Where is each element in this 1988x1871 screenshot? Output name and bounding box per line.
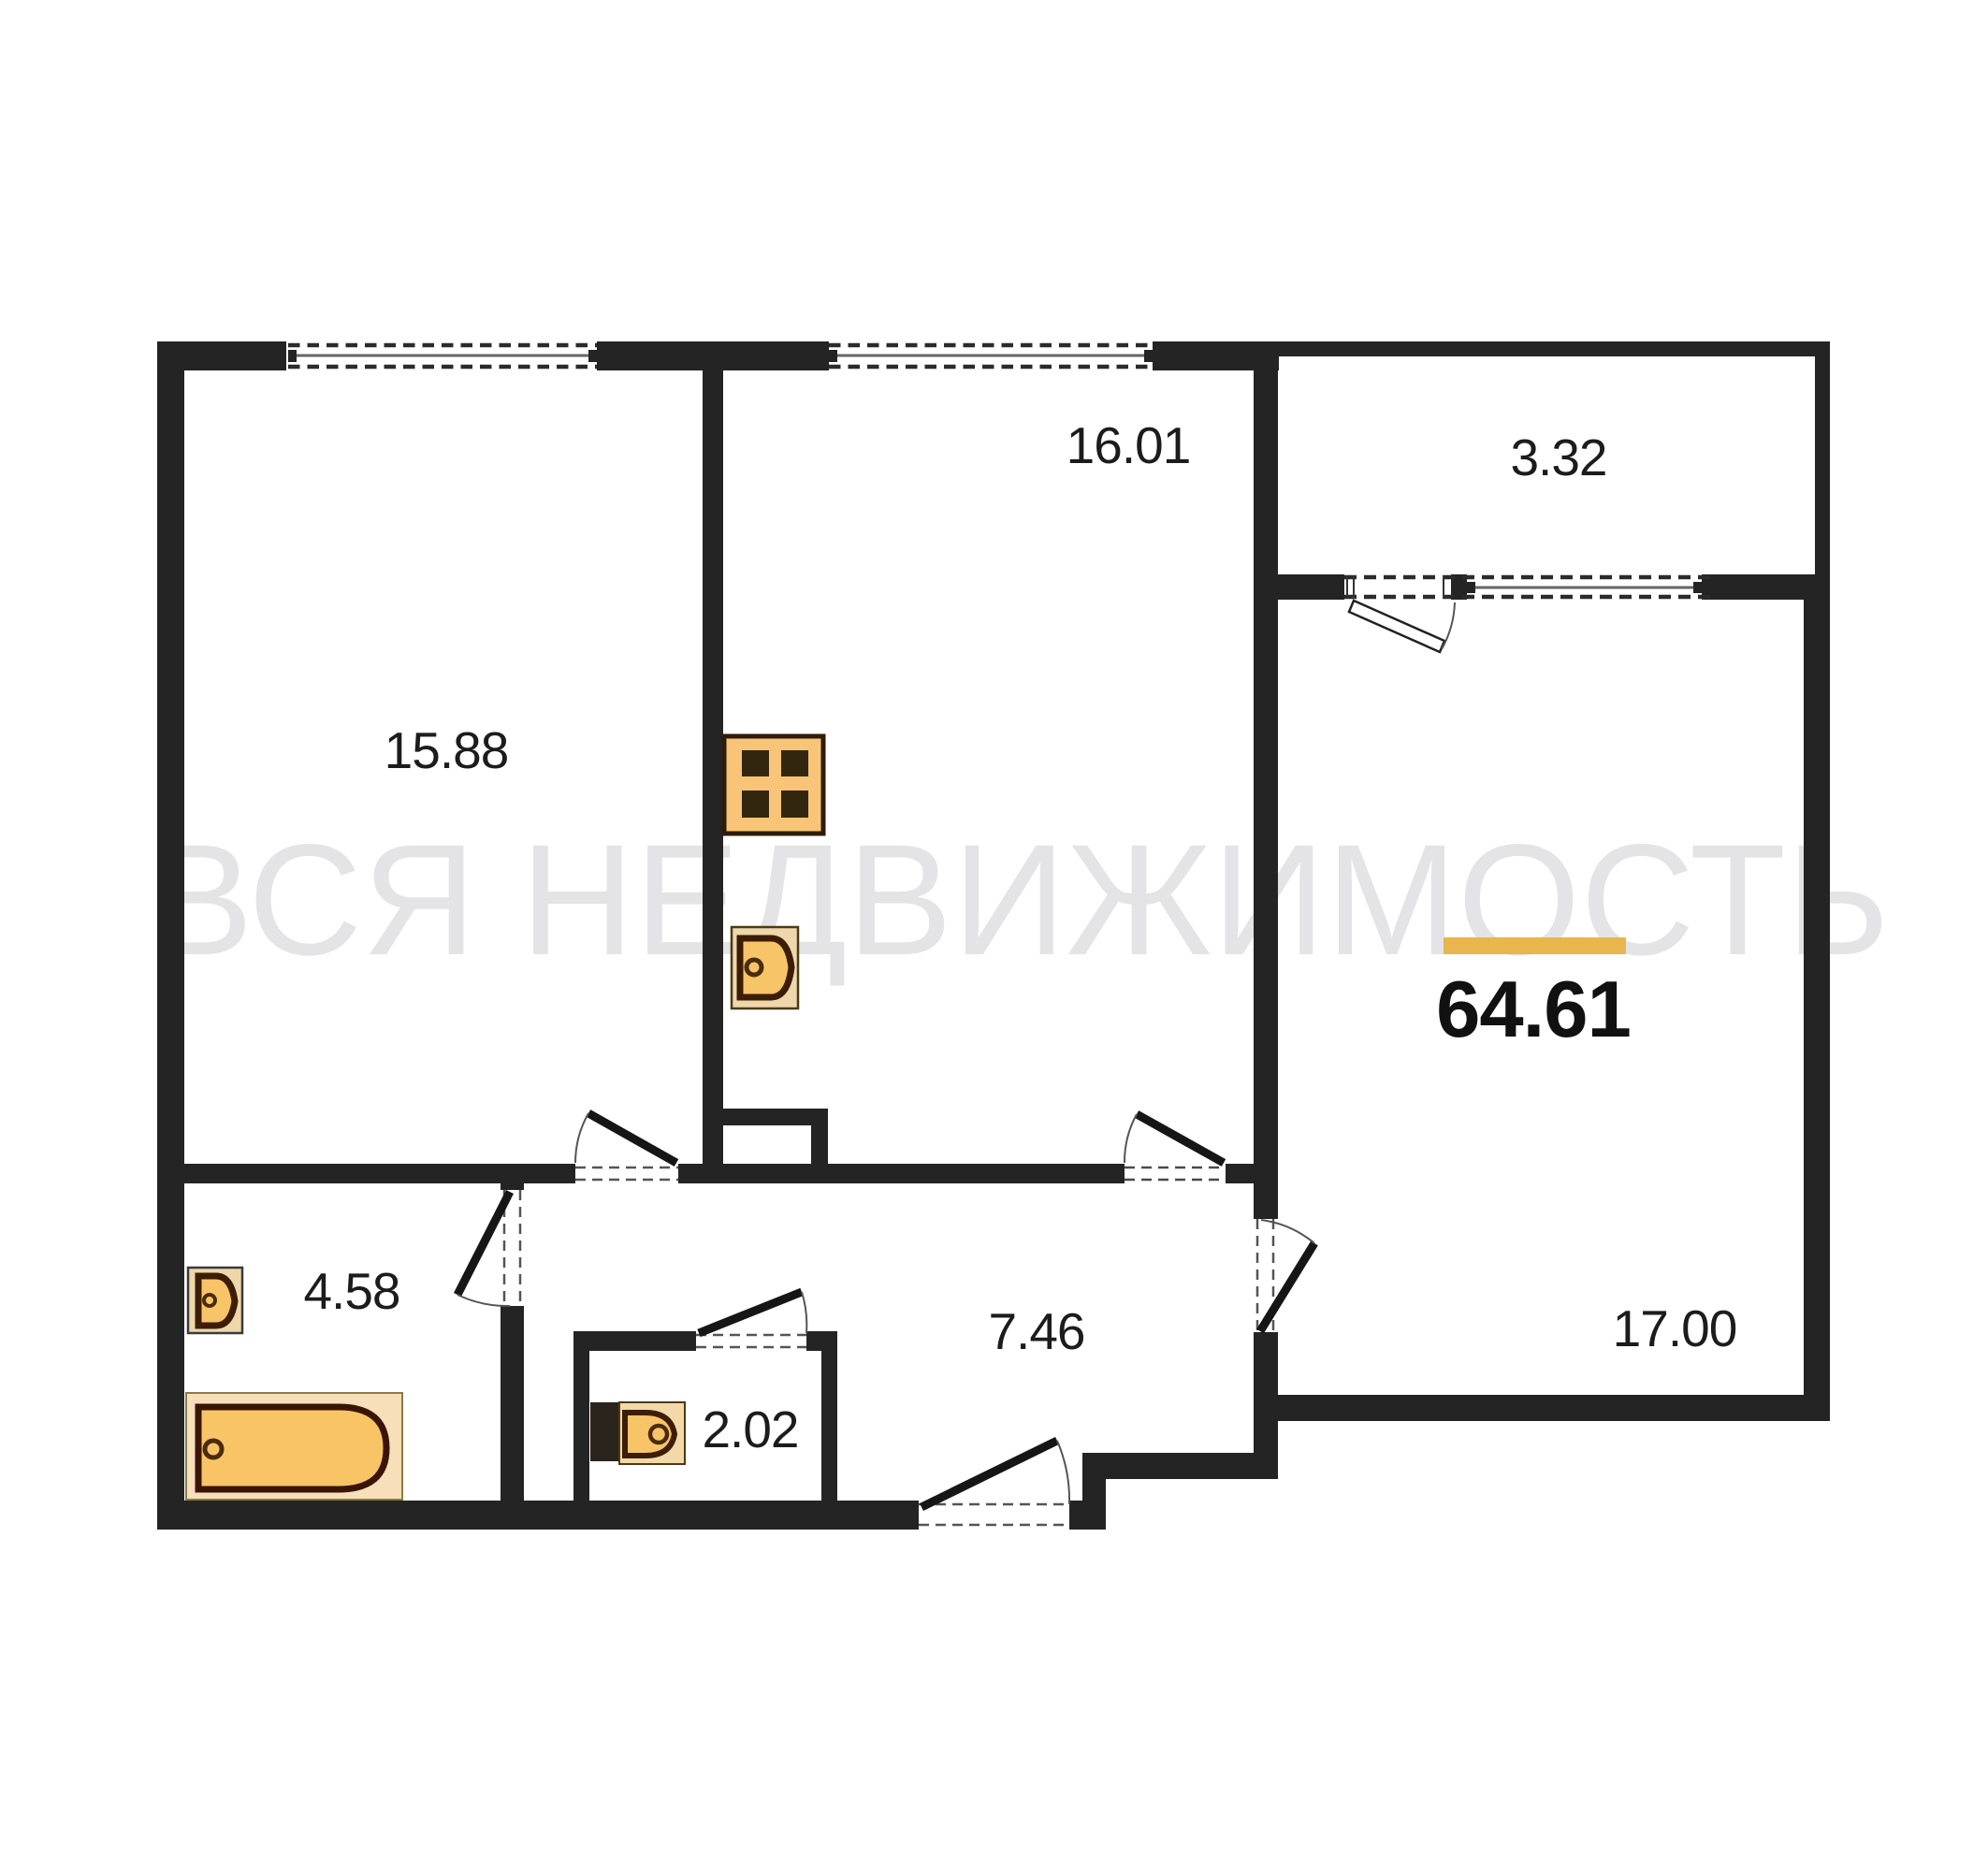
svg-text:2.02: 2.02	[702, 1400, 798, 1458]
svg-text:4.58: 4.58	[303, 1262, 399, 1320]
svg-text:7.46: 7.46	[988, 1302, 1084, 1360]
svg-text:64.61: 64.61	[1436, 965, 1631, 1054]
svg-text:ВСЯ НЕДВИЖИМОСТЬ: ВСЯ НЕДВИЖИМОСТЬ	[148, 811, 1890, 988]
svg-text:3.32: 3.32	[1510, 428, 1606, 486]
svg-text:17.00: 17.00	[1613, 1299, 1737, 1357]
svg-text:16.01: 16.01	[1067, 416, 1191, 474]
svg-text:15.88: 15.88	[385, 721, 509, 779]
